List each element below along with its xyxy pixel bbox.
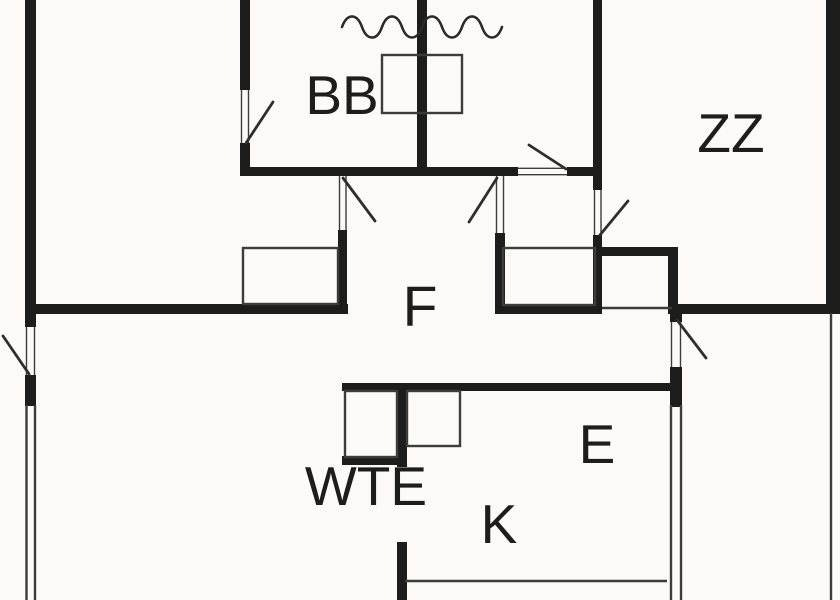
kitchen-top-wall bbox=[342, 383, 682, 391]
room-label-wte: WTE bbox=[305, 455, 427, 517]
living-bb-divider-upper bbox=[240, 0, 250, 90]
cabinet-right-outline bbox=[503, 248, 595, 305]
corridor-left-door-swing bbox=[343, 178, 375, 221]
wte-fixture-outline bbox=[345, 391, 397, 457]
corridor-bottom-wall-left bbox=[25, 304, 348, 314]
right-outer-wall bbox=[826, 0, 840, 313]
middle-zz-divider-wall bbox=[593, 0, 602, 190]
corridor-top-wall-right bbox=[567, 167, 602, 176]
bb-door-swing bbox=[246, 102, 273, 143]
floor-plan-svg: BB ZZ F WTE E K bbox=[0, 0, 840, 600]
corridor-left-door-jamb bbox=[338, 230, 347, 314]
balcony-door-swing bbox=[677, 320, 706, 358]
zz-door-swing bbox=[600, 201, 628, 235]
zz-step-wall bbox=[593, 247, 678, 256]
zz-step-side-wall bbox=[668, 256, 678, 304]
left-outer-wall-upper bbox=[25, 0, 36, 327]
floor-plan: BB ZZ F WTE E K bbox=[0, 0, 840, 600]
room-label-bb: BB bbox=[305, 64, 378, 126]
wte-partition-lower bbox=[397, 542, 407, 600]
middle-room-door-swing bbox=[529, 145, 566, 169]
room-label-f: F bbox=[403, 275, 438, 339]
room-label-k: K bbox=[481, 493, 518, 555]
zz-bottom-wall bbox=[668, 304, 840, 314]
room-label-e: E bbox=[579, 413, 616, 475]
corridor-right-door-swing bbox=[469, 178, 497, 222]
entry-door-swing bbox=[3, 336, 29, 374]
kitchen-fixture-outline bbox=[407, 391, 460, 446]
corridor-top-wall-left bbox=[240, 167, 518, 176]
left-outer-wall-segment bbox=[25, 375, 36, 406]
room-label-zz: ZZ bbox=[697, 102, 764, 164]
cabinet-left-outline bbox=[243, 248, 338, 304]
